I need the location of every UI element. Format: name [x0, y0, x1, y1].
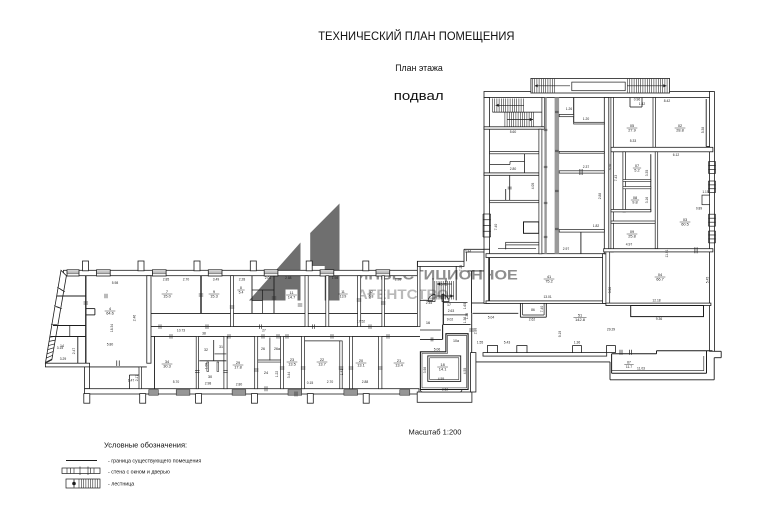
svg-text:4.55: 4.55 — [463, 368, 467, 375]
svg-text:10.73: 10.73 — [177, 329, 185, 333]
svg-text:7.43: 7.43 — [614, 175, 618, 182]
svg-text:2.80: 2.80 — [510, 167, 517, 171]
svg-text:3.16: 3.16 — [645, 197, 649, 204]
svg-text:3.98: 3.98 — [423, 367, 427, 374]
svg-text:60.5: 60.5 — [681, 221, 689, 226]
svg-text:0.89: 0.89 — [696, 207, 702, 211]
svg-text:3.35: 3.35 — [645, 170, 649, 177]
svg-text:2.88: 2.88 — [598, 193, 602, 200]
svg-text:31: 31 — [219, 345, 223, 349]
svg-text:9.02: 9.02 — [447, 318, 454, 322]
svg-text:2.46: 2.46 — [133, 315, 137, 322]
svg-text:2.70: 2.70 — [327, 380, 334, 384]
svg-text:17: 17 — [447, 303, 451, 307]
svg-text:13.9: 13.9 — [340, 294, 347, 298]
svg-text:2.06: 2.06 — [265, 276, 272, 280]
svg-text:75.2: 75.2 — [545, 278, 553, 283]
svg-text:32: 32 — [204, 348, 208, 352]
svg-text:30.3: 30.3 — [163, 363, 171, 368]
svg-text:- стена с окном и дверью: - стена с окном и дверью — [108, 470, 170, 476]
svg-text:2.97: 2.97 — [563, 247, 570, 251]
svg-text:28.8: 28.8 — [676, 127, 684, 132]
svg-text:8: 8 — [240, 286, 242, 290]
svg-text:15.3: 15.3 — [210, 293, 218, 298]
svg-text:1.38: 1.38 — [465, 313, 469, 320]
svg-text:5.2: 5.2 — [634, 167, 639, 172]
svg-text:86: 86 — [531, 308, 535, 312]
svg-text:11.7: 11.7 — [626, 365, 632, 369]
svg-text:1.65: 1.65 — [463, 303, 467, 310]
svg-text:9.50: 9.50 — [608, 164, 612, 171]
svg-text:5.70: 5.70 — [173, 380, 180, 384]
svg-text:13.7: 13.7 — [318, 361, 326, 366]
svg-text:27.9: 27.9 — [628, 127, 636, 132]
svg-text:9.36: 9.36 — [656, 317, 663, 321]
svg-text:1.22: 1.22 — [275, 371, 279, 378]
svg-text:2.88: 2.88 — [474, 328, 478, 335]
svg-text:11: 11 — [341, 290, 345, 294]
svg-text:3.44: 3.44 — [287, 372, 291, 379]
svg-text:26: 26 — [261, 347, 265, 351]
svg-text:2.17: 2.17 — [135, 375, 139, 382]
svg-text:25.8: 25.8 — [628, 233, 636, 238]
svg-text:4.59: 4.59 — [438, 377, 445, 381]
svg-text:6.12: 6.12 — [673, 153, 680, 157]
svg-text:11.03: 11.03 — [637, 367, 645, 371]
svg-text:4.97: 4.97 — [626, 243, 633, 247]
svg-text:3.29: 3.29 — [60, 357, 67, 361]
svg-text:26a: 26a — [274, 347, 280, 351]
svg-text:Условные обозначения:: Условные обозначения: — [104, 441, 187, 450]
svg-text:Масштаб 1:200: Масштаб 1:200 — [409, 428, 462, 437]
svg-text:11.01: 11.01 — [665, 249, 669, 257]
svg-text:1.15: 1.15 — [702, 190, 708, 194]
svg-text:1.98: 1.98 — [332, 276, 339, 280]
svg-text:5.75: 5.75 — [441, 283, 448, 287]
svg-text:38: 38 — [202, 332, 206, 336]
svg-text:1.20: 1.20 — [583, 117, 590, 121]
svg-text:2.85: 2.85 — [163, 278, 170, 282]
svg-text:0.96: 0.96 — [634, 98, 641, 102]
svg-text:2.47: 2.47 — [72, 348, 76, 355]
svg-text:13.01: 13.01 — [543, 295, 551, 299]
svg-text:18.34: 18.34 — [110, 324, 114, 332]
svg-text:- граница существующего помеще: - граница существующего помещения — [108, 459, 201, 465]
svg-text:15.0: 15.0 — [163, 293, 171, 298]
svg-text:5.4: 5.4 — [239, 290, 244, 294]
svg-text:5.43: 5.43 — [504, 341, 511, 345]
svg-text:2.70: 2.70 — [183, 278, 190, 282]
svg-text:64.6: 64.6 — [106, 310, 114, 315]
svg-text:0.98: 0.98 — [608, 287, 612, 294]
svg-text:2.98: 2.98 — [395, 278, 402, 282]
svg-text:10a: 10a — [453, 339, 459, 343]
svg-text:29.29: 29.29 — [607, 328, 615, 332]
svg-text:9.19: 9.19 — [558, 331, 562, 338]
svg-text:17.52: 17.52 — [357, 320, 365, 324]
svg-text:142.8: 142.8 — [575, 317, 585, 322]
svg-text:подвал: подвал — [394, 88, 444, 103]
svg-text:66.7: 66.7 — [656, 276, 664, 281]
svg-text:2.88: 2.88 — [285, 276, 292, 280]
svg-text:5.80: 5.80 — [107, 343, 114, 347]
svg-text:8.42: 8.42 — [664, 99, 671, 103]
svg-text:7.28: 7.28 — [459, 265, 463, 272]
svg-text:1.42: 1.42 — [639, 102, 646, 106]
svg-text:2.45: 2.45 — [426, 301, 433, 305]
svg-text:5.06: 5.06 — [434, 348, 441, 352]
svg-text:3.34: 3.34 — [465, 250, 472, 254]
svg-text:1.41: 1.41 — [340, 369, 344, 376]
svg-text:1.36: 1.36 — [574, 341, 581, 345]
svg-text:2.62: 2.62 — [529, 318, 536, 322]
svg-text:14.7: 14.7 — [288, 294, 296, 299]
svg-text:6.8: 6.8 — [369, 294, 374, 298]
svg-text:9.8: 9.8 — [632, 199, 637, 204]
svg-text:7.40: 7.40 — [540, 306, 544, 313]
svg-text:27: 27 — [262, 329, 266, 333]
svg-text:3.62: 3.62 — [442, 388, 449, 392]
svg-text:12.18: 12.18 — [652, 299, 660, 303]
svg-text:3.49: 3.49 — [213, 278, 220, 282]
svg-text:4.05: 4.05 — [531, 183, 535, 190]
svg-text:1.09: 1.09 — [205, 363, 209, 370]
svg-text:13.1: 13.1 — [357, 362, 365, 367]
svg-text:1.47: 1.47 — [128, 379, 135, 383]
svg-text:14.1: 14.1 — [439, 366, 447, 371]
svg-text:2.28: 2.28 — [239, 278, 246, 282]
svg-text:5.38: 5.38 — [701, 127, 705, 134]
svg-text:67: 67 — [627, 361, 631, 365]
svg-text:1.82: 1.82 — [593, 224, 600, 228]
svg-text:2.98: 2.98 — [205, 382, 212, 386]
svg-text:1.55: 1.55 — [477, 341, 484, 345]
svg-text:5.33: 5.33 — [630, 139, 637, 143]
svg-text:7.40: 7.40 — [494, 224, 498, 231]
svg-text:5.04: 5.04 — [488, 316, 495, 320]
svg-text:16: 16 — [426, 320, 430, 325]
svg-text:ТЕХНИЧЕСКИЙ ПЛАН ПОМЕЩЕНИЯ: ТЕХНИЧЕСКИЙ ПЛАН ПОМЕЩЕНИЯ — [318, 28, 514, 43]
svg-text:13.4: 13.4 — [395, 362, 403, 367]
svg-text:13.5: 13.5 — [288, 361, 296, 366]
svg-text:5.45: 5.45 — [705, 277, 709, 284]
svg-text:1.26: 1.26 — [566, 107, 573, 111]
svg-text:5.98: 5.98 — [112, 281, 119, 285]
svg-text:0.15: 0.15 — [307, 381, 314, 385]
svg-text:12: 12 — [369, 290, 373, 294]
svg-text:17.8: 17.8 — [234, 364, 242, 369]
svg-text:План этажа: План этажа — [395, 63, 443, 73]
svg-text:2.88: 2.88 — [362, 380, 369, 384]
svg-text:- лестница: - лестница — [108, 482, 134, 488]
svg-text:2.80: 2.80 — [236, 383, 243, 387]
svg-text:14: 14 — [60, 344, 64, 348]
svg-text:5.60: 5.60 — [510, 130, 517, 134]
svg-text:2.37: 2.37 — [583, 165, 590, 169]
svg-text:2.63: 2.63 — [448, 309, 455, 313]
